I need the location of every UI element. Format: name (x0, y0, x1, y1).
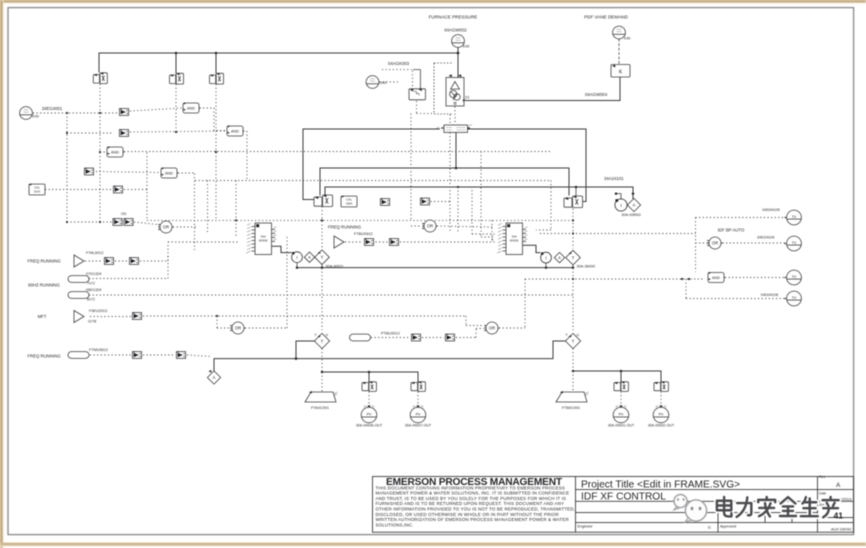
svg-text:FURNISHED AND IS TO BE RETURNE: FURNISHED AND IS TO BE RETURNED UPON REQ… (376, 501, 565, 506)
svg-text:04AGK003: 04AGK003 (388, 61, 410, 66)
svg-text:MANAGEMENT POWER & WATER SOLUT: MANAGEMENT POWER & WATER SOLUTIONS, INC.… (376, 491, 570, 496)
svg-text:08D1324: 08D1324 (86, 288, 101, 292)
svg-text:AND TRUST, IS TO BE USED BY YO: AND TRUST, IS TO BE USED BY YOU SOLELY F… (376, 496, 567, 501)
svg-text:FTBUS612: FTBUS612 (354, 232, 373, 236)
svg-text:Engineer: Engineer (578, 525, 594, 529)
svg-text:F0EU2013: F0EU2013 (89, 309, 107, 313)
svg-text:Project Title <Edit in FRAME.S: Project Title <Edit in FRAME.SVG> (581, 480, 740, 491)
svg-text:FREQ RUNNING: FREQ RUNNING (27, 354, 61, 359)
svg-text:30A-93R63: 30A-93R63 (621, 213, 640, 217)
svg-text:ON: ON (121, 212, 127, 216)
svg-text:41: 41 (833, 511, 843, 521)
svg-text:E40: E40 (463, 45, 469, 49)
svg-text:E40: E40 (33, 115, 39, 119)
svg-text:PTBUS012: PTBUS012 (381, 331, 400, 335)
svg-text:30A-09006-OUT: 30A-09006-OUT (356, 423, 383, 427)
svg-text:7V72: 7V72 (87, 281, 95, 285)
svg-text:Date: Date (819, 492, 826, 496)
svg-text:30A-09007-OUT: 30A-09007-OUT (405, 423, 432, 427)
svg-text:30A-36000: 30A-36000 (577, 264, 596, 268)
svg-text:Approved: Approved (720, 525, 736, 529)
svg-text:30A-09001-OUT: 30A-09001-OUT (608, 423, 635, 427)
svg-text:07D1324: 07D1324 (86, 272, 101, 276)
svg-text:04AGW002: 04AGW002 (444, 27, 467, 32)
svg-text:FTMU5612: FTMU5612 (89, 348, 108, 352)
svg-text:SCN: SCN (34, 189, 40, 193)
svg-text:K40: K40 (624, 36, 630, 40)
svg-text:OTHER INFORMATION PROVIDED TO: OTHER INFORMATION PROVIDED TO YOU IS NOT… (376, 507, 576, 512)
svg-text:11: 11 (707, 526, 711, 530)
svg-text:E2: E2 (466, 96, 470, 100)
svg-text:IDF BP AUTO: IDF BP AUTO (718, 228, 745, 233)
svg-text:PDF VANE DEMAND: PDF VANE DEMAND (584, 15, 628, 20)
svg-text:8V72: 8V72 (87, 297, 95, 301)
svg-text:FTB0C001: FTB0C001 (562, 406, 580, 410)
svg-text:04D04105: 04D04105 (762, 208, 780, 212)
svg-text:G/7/8: G/7/8 (88, 320, 96, 324)
svg-text:30A-09002-OUT: 30A-09002-OUT (648, 423, 675, 427)
svg-text:FREQ RUNNING: FREQ RUNNING (328, 224, 362, 229)
svg-text:FTAL6012: FTAL6012 (86, 251, 103, 255)
svg-text:34A24101: 34A24101 (604, 176, 624, 181)
svg-text:THIS DOCUMENT CONTAINS INFORMA: THIS DOCUMENT CONTAINS INFORMATION PROPR… (376, 485, 565, 490)
svg-text:04AGW004: 04AGW004 (585, 92, 608, 97)
svg-text:SOLUTIONS,INC.: SOLUTIONS,INC. (376, 522, 414, 527)
svg-text:FTA0C001: FTA0C001 (311, 406, 329, 410)
svg-text:Rev.: Rev. (819, 475, 826, 479)
svg-text:60HZ RUNNING: 60HZ RUNNING (28, 283, 60, 288)
svg-text:04D04106: 04D04106 (761, 293, 779, 297)
svg-text:FURNACE PRESSURE: FURNACE PRESSURE (429, 15, 478, 20)
svg-text:GEN: GEN (346, 201, 353, 205)
svg-text:MFT: MFT (38, 314, 47, 319)
svg-text:IDF XF CONTROL: IDF XF CONTROL (581, 492, 666, 503)
svg-text:A: A (836, 482, 841, 489)
svg-text:34D24104: 34D24104 (757, 236, 775, 240)
svg-text:WRITTEN AUTHORIZATION OF EMERS: WRITTEN AUTHORIZATION OF EMERSON PROCESS… (376, 517, 569, 522)
svg-text:30A-9057I: 30A-9057I (326, 264, 344, 268)
svg-text:34EG4001: 34EG4001 (42, 106, 63, 111)
svg-text:E40: E40 (380, 81, 386, 85)
svg-text:FREQ RUNNING: FREQ RUNNING (27, 259, 61, 264)
svg-text:DISCLOSED, OR USED OTHERWISE I: DISCLOSED, OR USED OTHERWISE IN WHOLE OR… (376, 512, 559, 517)
svg-text:AUX DATA2: AUX DATA2 (831, 528, 852, 532)
